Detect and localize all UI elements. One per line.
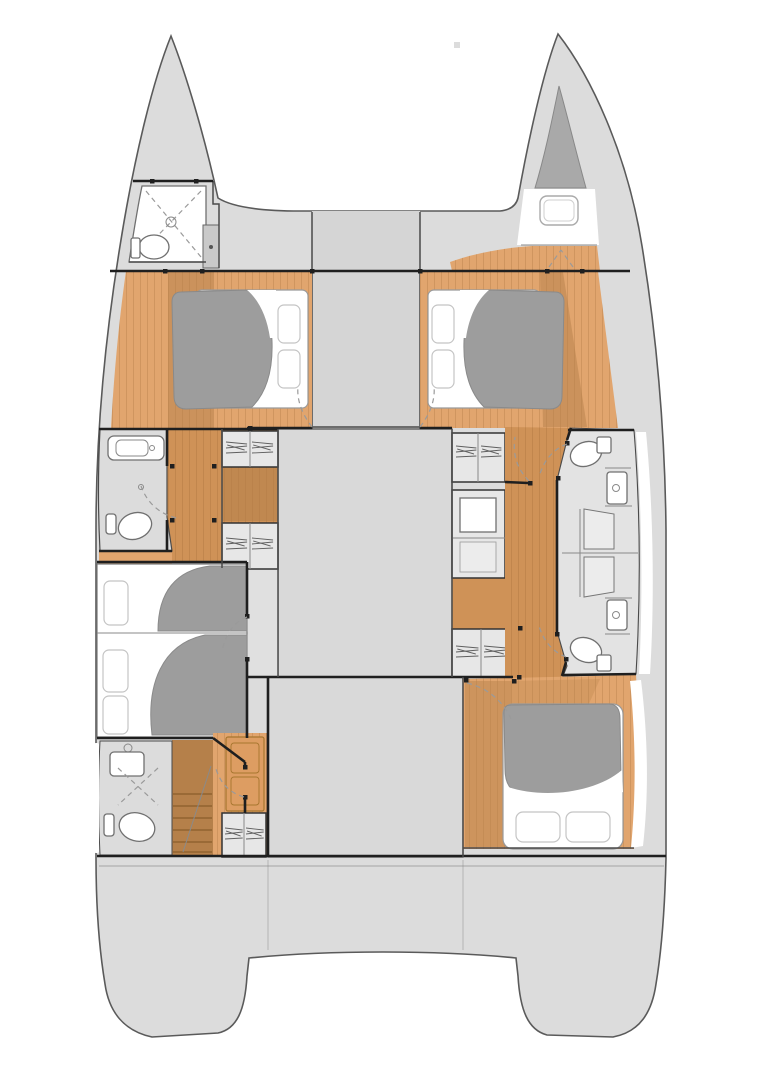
sink-port-aft xyxy=(110,752,144,776)
drawer-unit-stbd-forward xyxy=(452,433,505,482)
toilet-tank-stbd-aft xyxy=(597,655,611,671)
bunk-pillow-1 xyxy=(104,581,128,625)
port-aft-bathroom xyxy=(94,741,172,855)
berth-pillow-1 xyxy=(278,305,300,343)
bunk-pillow-2 xyxy=(103,650,128,692)
galley-cabinet-stbd xyxy=(452,490,505,578)
stairs-wood xyxy=(172,740,213,857)
stbd-cabinet-wood-gap xyxy=(452,578,505,629)
bow-cabinet-knob xyxy=(209,245,213,249)
berth-pillow-2 xyxy=(432,350,454,388)
berth-pillow-2 xyxy=(566,812,610,842)
print-artifact-dot xyxy=(454,42,460,48)
central-walkway xyxy=(312,211,420,430)
sink-stbd-forward xyxy=(607,472,627,504)
bunk-pillow-3 xyxy=(103,696,128,734)
cockpit-floor xyxy=(268,677,463,857)
saloon-floor xyxy=(278,429,452,677)
berth-pillow-2 xyxy=(278,350,300,388)
starboard-aft-cabin xyxy=(463,675,647,849)
hull-white-sliver xyxy=(94,743,99,853)
dark-wood-head xyxy=(511,679,600,706)
bunk-side-strip xyxy=(247,562,278,677)
berth-pillow-1 xyxy=(432,305,454,343)
toilet-tank-stbd-forward xyxy=(597,437,611,453)
port-mid-dark-wood xyxy=(222,467,278,521)
port-forward-cabin xyxy=(111,271,312,428)
toilet-tank-bow-port xyxy=(131,238,140,258)
starboard-forward-cabin xyxy=(420,271,618,428)
port-companionway xyxy=(172,733,268,857)
toilet-tank-port-forward xyxy=(106,514,116,534)
cockpit-block xyxy=(268,677,463,857)
drawer-unit-port-aft xyxy=(222,813,266,857)
toilet-tank-port-aft xyxy=(104,814,114,836)
port-forward-bathroom xyxy=(99,429,173,551)
berth-duvet xyxy=(464,290,564,409)
port-bow-head xyxy=(129,181,219,268)
drawer-unit-port-forward xyxy=(222,431,278,467)
floor-plan-page: catamaran-interior-floor-plan xyxy=(0,0,772,1080)
berth-pillow-1 xyxy=(516,812,560,842)
floor-plan-drawing: catamaran-interior-floor-plan xyxy=(0,0,772,1080)
shower-bench-aft xyxy=(584,557,614,597)
foredeck xyxy=(312,211,420,430)
heads-floor xyxy=(557,428,639,676)
drawer-unit-stbd-aft xyxy=(452,629,511,677)
berth-duvet xyxy=(172,290,272,409)
toilet-bow-port xyxy=(139,235,169,259)
starboard-bathrooms xyxy=(505,427,653,678)
sink-stbd-aft xyxy=(607,600,627,630)
shower-bench-forward xyxy=(584,509,614,549)
